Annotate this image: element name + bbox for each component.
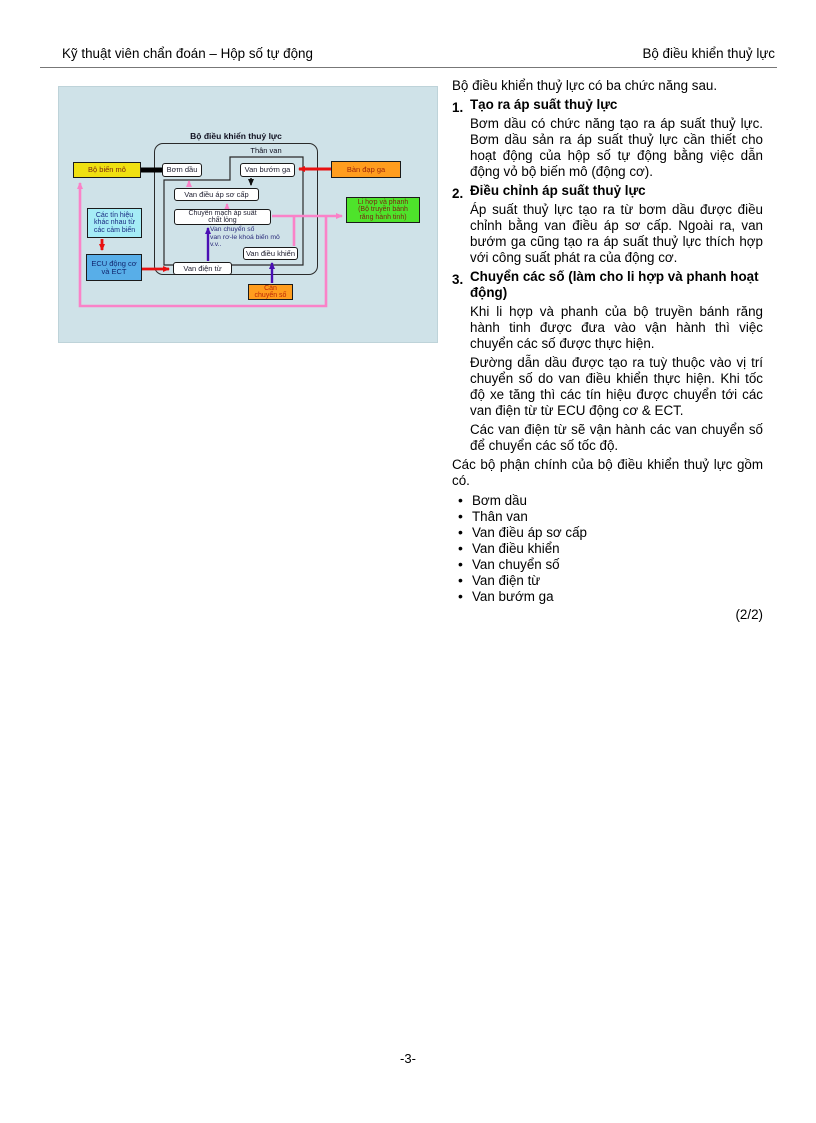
bullet-item: Van bướm ga xyxy=(452,589,763,605)
box-clutches-brakes: Li hợp và phanh (Bộ truyền bánh răng hàn… xyxy=(346,197,420,223)
section-3-paragraph: Khi li hợp và phanh của bộ truyền bánh r… xyxy=(470,304,763,352)
section-2-number: 2. xyxy=(452,186,463,202)
box-sensor-signals: Các tín hiệu khác nhau từ các cảm biến xyxy=(87,208,142,238)
bullet-item: Van điện từ xyxy=(452,573,763,589)
page-number-footer: -3- xyxy=(0,1051,816,1066)
valve-body-label: Thân van xyxy=(236,146,296,155)
section-3-paragraph: Đường dẫn dầu được tạo ra tuỳ thuộc vào … xyxy=(470,355,763,419)
section-1: 1. Tạo ra áp suất thuỷ lực Bơm dầu có ch… xyxy=(452,97,763,180)
header-right-title: Bộ điều khiển thuỷ lực xyxy=(642,46,777,61)
section-3-paragraph: Các van điện từ sẽ vận hành các van chuy… xyxy=(470,422,763,454)
bullet-list: Bơm dầu Thân van Van điều áp sơ cấp Van … xyxy=(452,493,763,605)
section-1-paragraph: Bơm dầu có chức năng tạo ra áp suất thuỷ… xyxy=(470,116,763,180)
bullet-item: Bơm dầu xyxy=(452,493,763,509)
section-3-number: 3. xyxy=(452,272,463,288)
box-ecu-engine-ect: ECU động cơ và ECT xyxy=(86,254,142,281)
section-1-number: 1. xyxy=(452,100,463,116)
diagram-title: Bộ điều khiển thuỷ lực xyxy=(144,131,328,141)
page-header: Kỹ thuật viên chẩn đoán – Hộp số tự động… xyxy=(40,46,777,68)
box-shift-lever: Cần chuyển số xyxy=(248,284,293,300)
annotation-shift-valves: Van chuyển số van rơ-le khoá biến mô v.v… xyxy=(210,226,302,249)
box-control-valve: Van điều khiển xyxy=(243,247,298,260)
box-fluid-pressure-switch: Chuyển mạch áp suất chất lỏng xyxy=(174,209,271,225)
section-2: 2. Điều chỉnh áp suất thuỷ lực Áp suất t… xyxy=(452,183,763,266)
bullet-item: Van điều áp sơ cấp xyxy=(452,525,763,541)
diagram-panel: Bộ điều khiển thuỷ lực Thân van Bộ biến … xyxy=(58,86,438,343)
box-solenoid-valve: Van điện từ xyxy=(173,262,232,275)
section-3-heading: Chuyển các số (làm cho li hợp và phanh h… xyxy=(470,269,763,301)
bullet-item: Thân van xyxy=(452,509,763,525)
box-accelerator-pedal: Bàn đạp ga xyxy=(331,161,401,178)
section-2-paragraph: Áp suất thuỷ lực tạo ra từ bơm dầu được … xyxy=(470,202,763,266)
box-oil-pump: Bơm dầu xyxy=(162,163,202,177)
section-1-heading: Tạo ra áp suất thuỷ lực xyxy=(470,97,763,113)
header-left-title: Kỹ thuật viên chẩn đoán – Hộp số tự động xyxy=(40,46,313,61)
box-torque-converter: Bộ biến mô xyxy=(73,162,141,178)
box-throttle-valve: Van bướm ga xyxy=(240,163,295,177)
closing-text: Các bộ phận chính của bộ điều khiển thuỷ… xyxy=(452,457,763,489)
bullet-item: Van chuyển số xyxy=(452,557,763,573)
page-indicator: (2/2) xyxy=(452,607,763,623)
section-2-heading: Điều chỉnh áp suất thuỷ lực xyxy=(470,183,763,199)
box-primary-regulator-valve: Van điều áp sơ cấp xyxy=(174,188,259,201)
intro-text: Bộ điều khiển thuỷ lực có ba chức năng s… xyxy=(452,78,763,94)
content-column: Bộ điều khiển thuỷ lực có ba chức năng s… xyxy=(452,78,763,623)
section-3: 3. Chuyển các số (làm cho li hợp và phan… xyxy=(452,269,763,454)
bullet-item: Van điều khiển xyxy=(452,541,763,557)
